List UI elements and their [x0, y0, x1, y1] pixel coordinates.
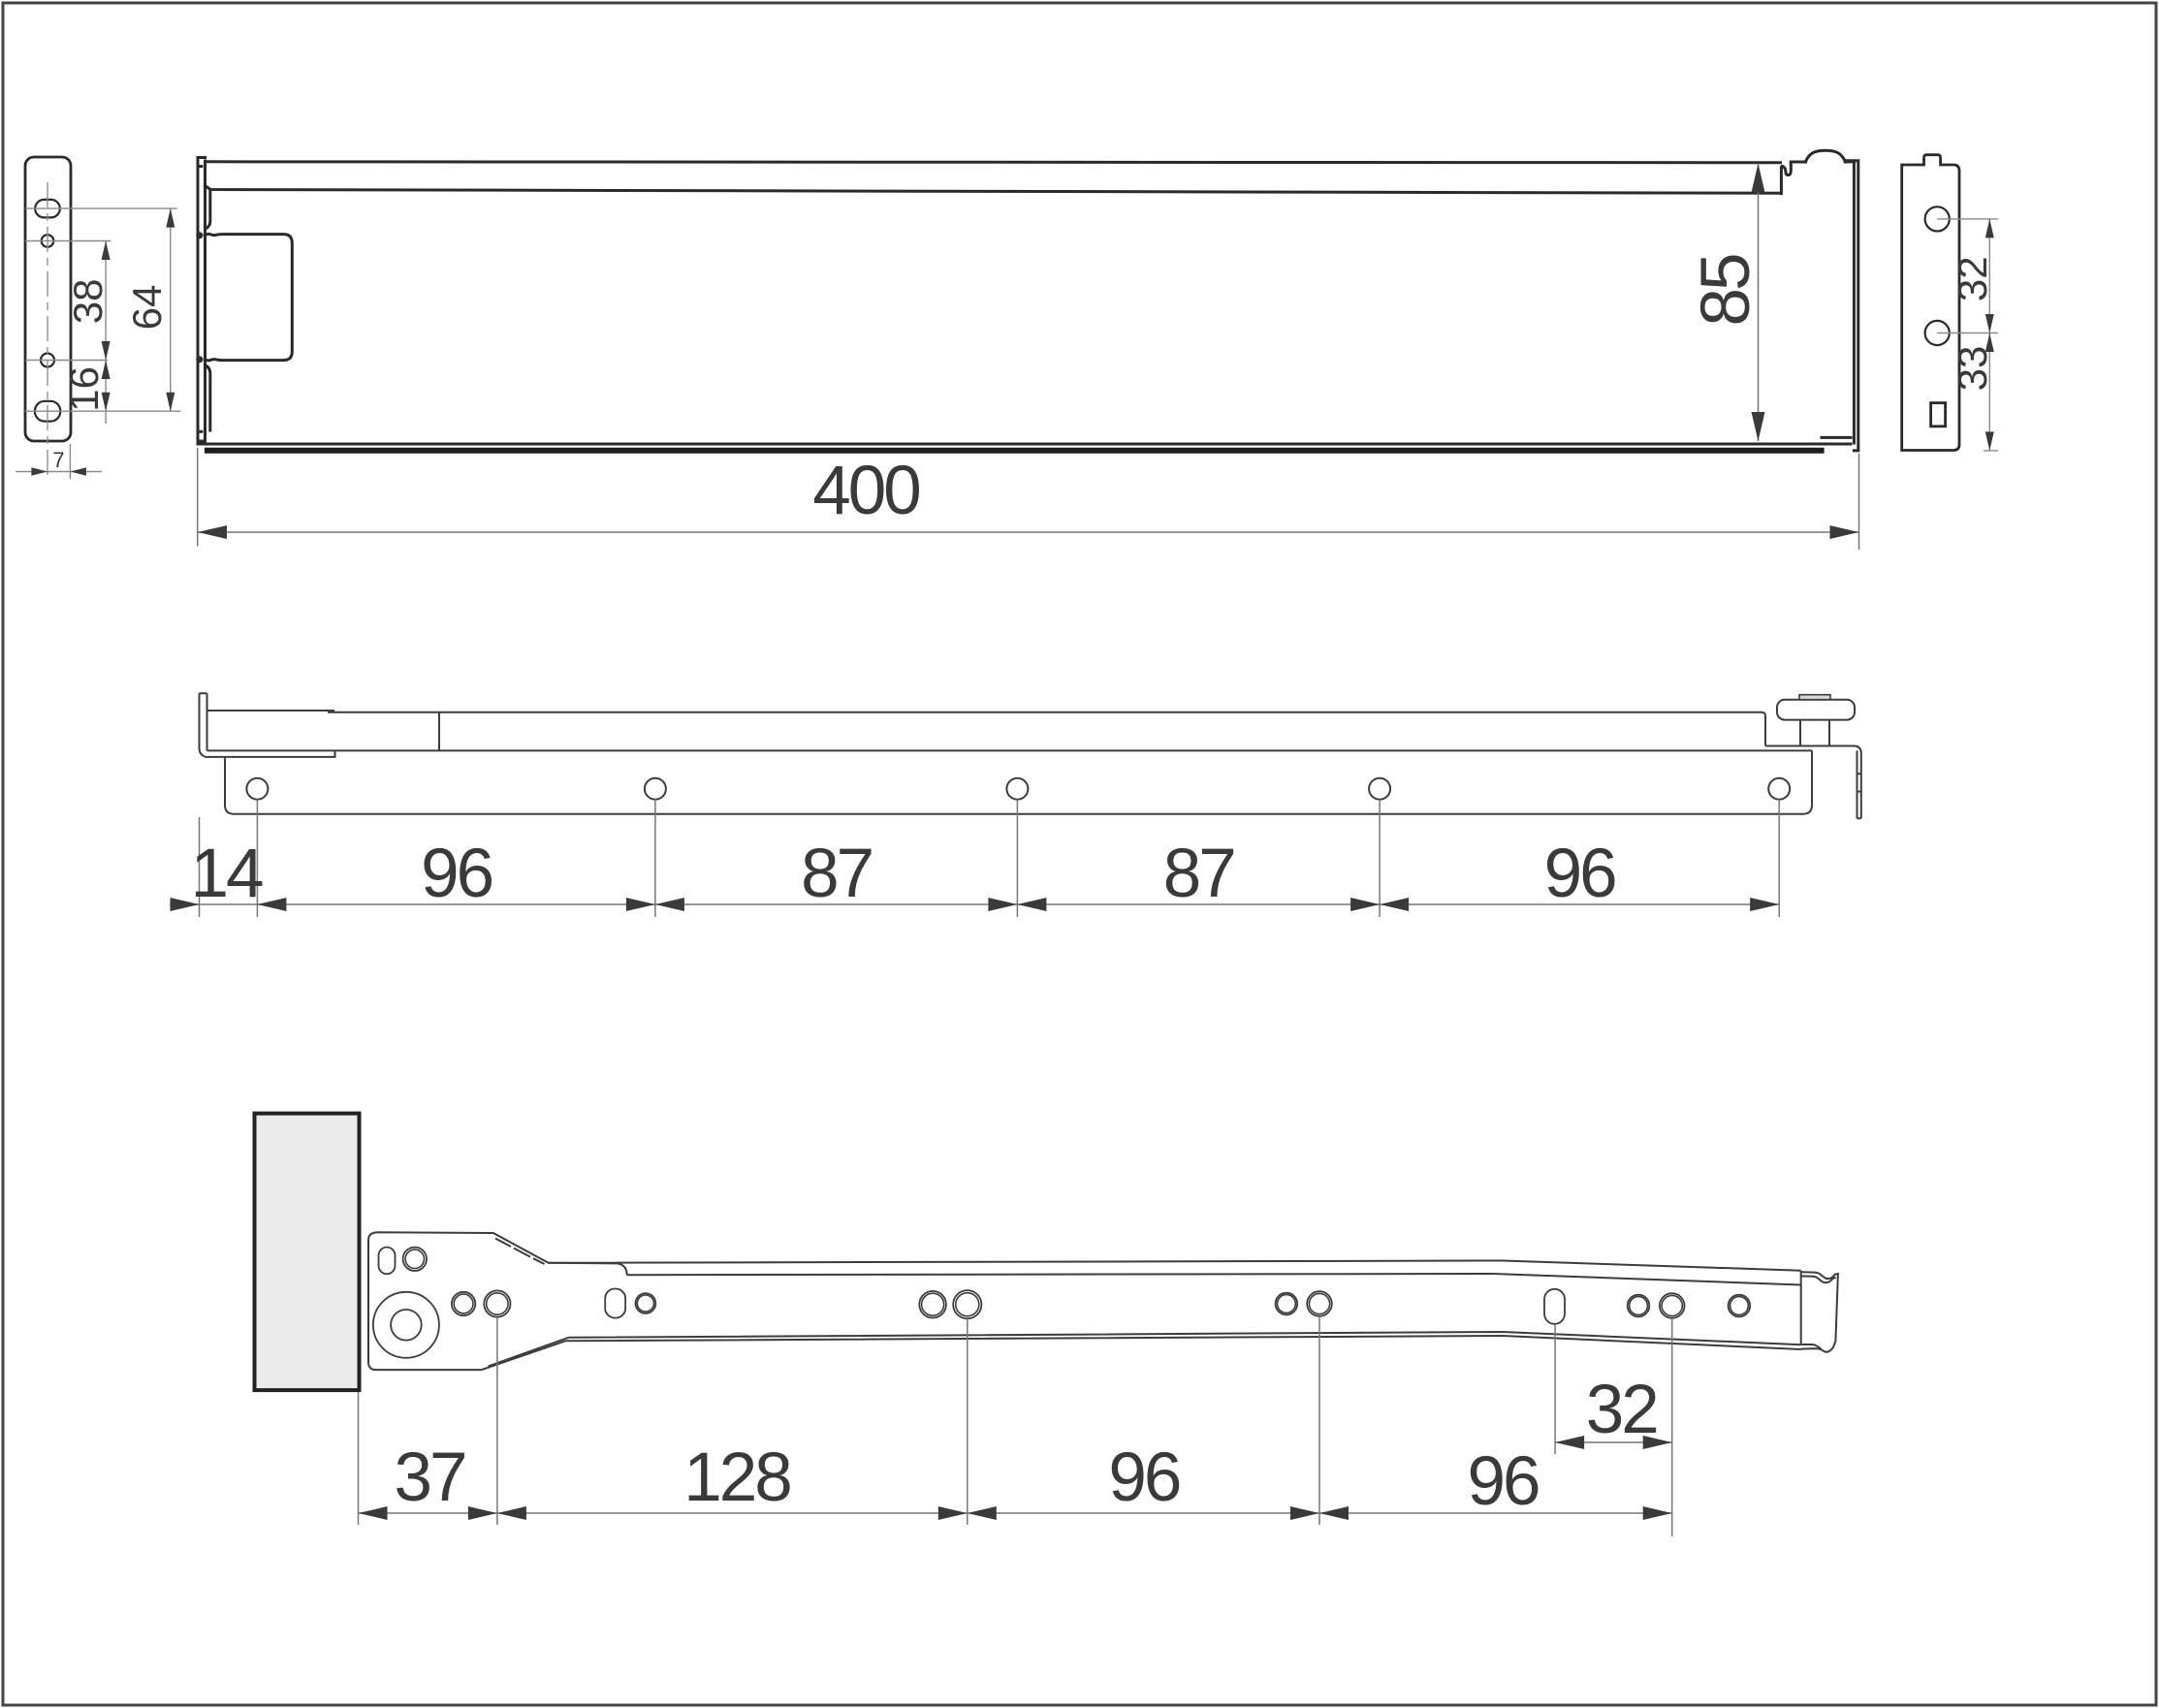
svg-text:33: 33 — [1950, 346, 1995, 392]
svg-text:85: 85 — [1688, 255, 1764, 326]
svg-text:14: 14 — [191, 836, 263, 912]
svg-text:37: 37 — [395, 1439, 465, 1516]
svg-text:96: 96 — [421, 836, 492, 912]
svg-text:32: 32 — [1586, 1372, 1657, 1448]
svg-text:128: 128 — [683, 1439, 790, 1516]
svg-text:7: 7 — [52, 448, 64, 472]
svg-text:16: 16 — [61, 366, 107, 412]
svg-text:96: 96 — [1544, 836, 1615, 912]
svg-text:38: 38 — [65, 279, 111, 325]
svg-text:32: 32 — [1950, 256, 1995, 301]
svg-text:87: 87 — [801, 836, 872, 912]
svg-text:87: 87 — [1163, 836, 1234, 912]
svg-text:96: 96 — [1108, 1439, 1179, 1516]
svg-text:96: 96 — [1468, 1443, 1539, 1520]
svg-text:64: 64 — [124, 285, 170, 331]
svg-text:400: 400 — [812, 453, 919, 529]
